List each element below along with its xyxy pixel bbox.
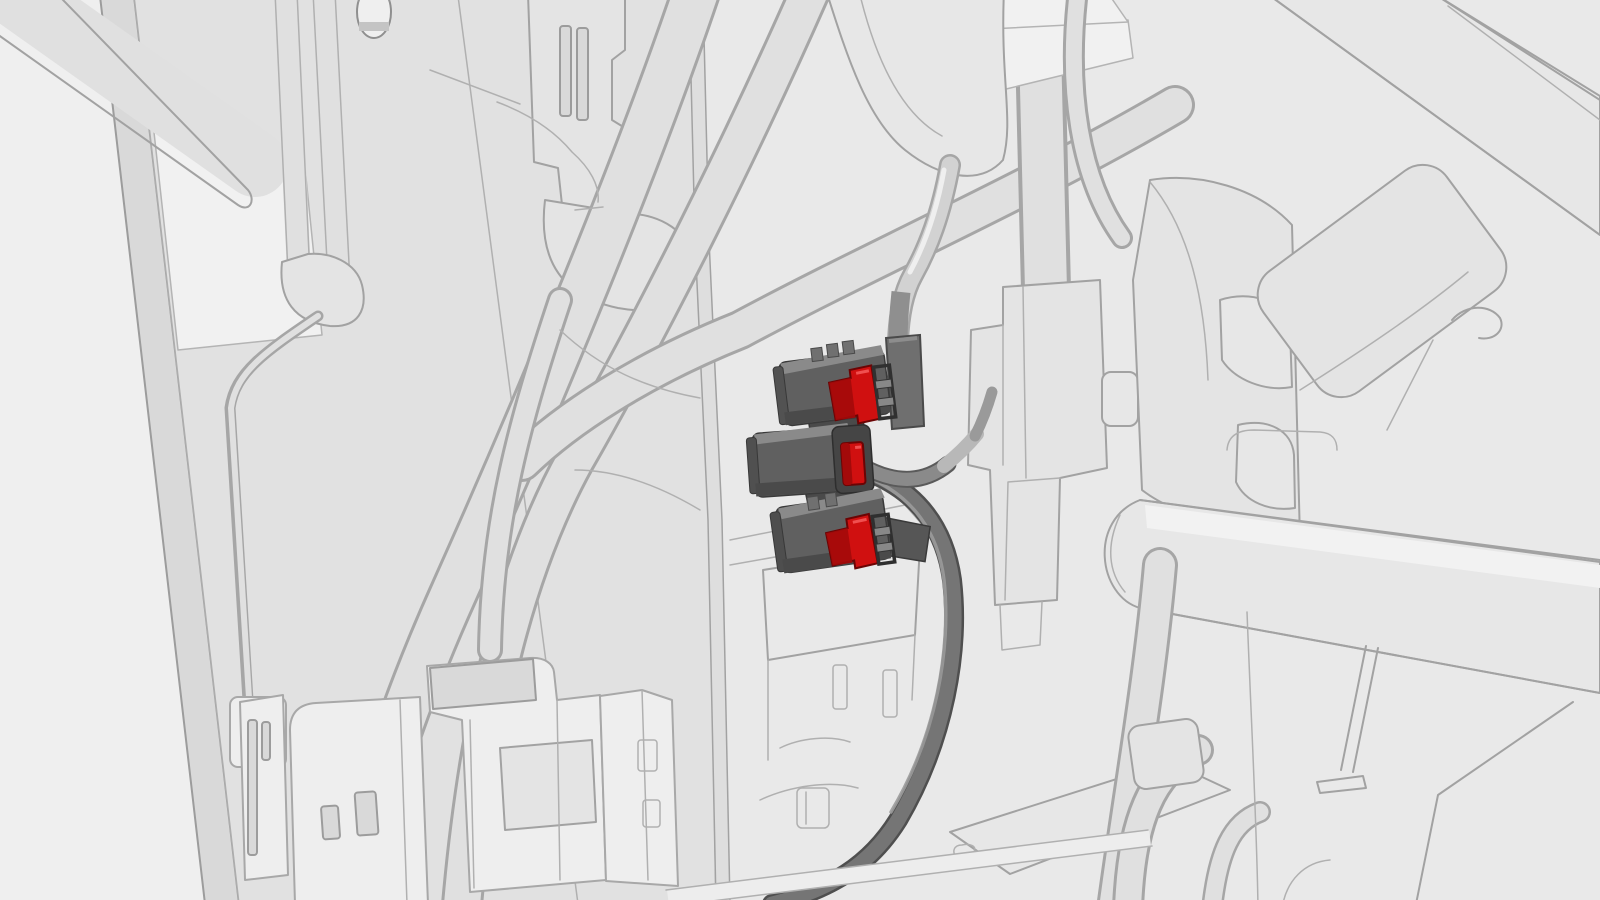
elbow-bracket (1127, 717, 1205, 790)
right-arch (1133, 178, 1300, 540)
right-plate (600, 690, 678, 886)
connector-middle (746, 421, 875, 499)
clip-cutout (500, 740, 596, 830)
service-illustration (0, 0, 1600, 900)
left-posts (286, 0, 300, 295)
grommet (357, 0, 391, 38)
small-cylinder (1102, 372, 1138, 426)
